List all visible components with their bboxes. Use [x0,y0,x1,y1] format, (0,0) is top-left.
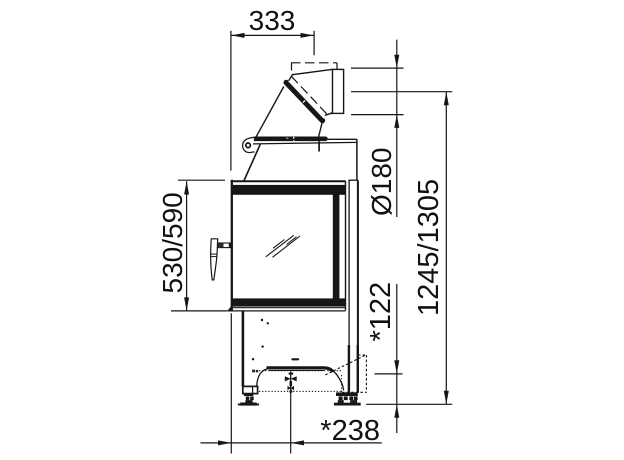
svg-text:Ø180: Ø180 [366,148,397,217]
svg-text:530/590: 530/590 [157,192,188,293]
svg-text:*238: *238 [320,415,380,447]
svg-text:1245/1305: 1245/1305 [413,179,445,316]
svg-text:*122: *122 [365,282,397,342]
svg-text:333: 333 [249,5,296,36]
